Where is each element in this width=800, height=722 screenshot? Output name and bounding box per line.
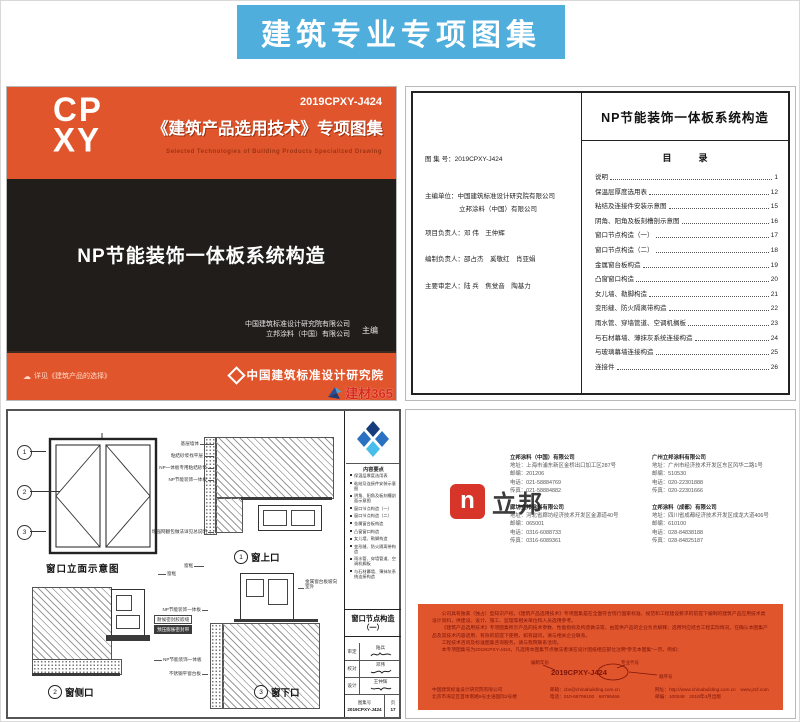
window-frame-section <box>240 573 294 621</box>
annotation-text: 不锈钢平窗台板 <box>169 671 201 676</box>
contents-item: 保温层厚度选用表 <box>354 473 398 478</box>
annotation: NP一体板专用粘结砂浆 <box>128 465 214 470</box>
copyright-notice-box: 公司具有独家（独占）型知识产权，《建筑产品选用技术》专项图集是在全面符合现行国家… <box>418 604 783 710</box>
annotation: NP节能装饰一体板 <box>128 477 214 482</box>
annotation: 金属窗台板坡向室外 <box>298 579 339 590</box>
sheet-title: 窗口节点构造 <box>345 614 401 623</box>
company-zip: 邮编：610100 <box>652 520 792 528</box>
window-frame-section <box>111 589 145 637</box>
company-block: 立邦涂料（成都）有限公司 地址：四川省成都经济技术开发区成龙大道406号 邮编：… <box>652 504 792 545</box>
company-zip: 邮编：201206 <box>510 470 648 478</box>
toc-item: 女儿墙、勒脚构造21 <box>595 288 778 298</box>
page-label: 页 <box>391 700 395 706</box>
annotation-text: NP一体板专用粘结砂浆 <box>159 465 207 470</box>
detail-label: 窗下口 <box>271 685 300 699</box>
publisher-web-col: 网址：http://www.chinabuilding.com.cn www.j… <box>655 687 769 701</box>
company-fax: 传真：021-58884882 <box>510 487 648 495</box>
publisher-email: 邮箱：cbs@chinabuilding.com.cn <box>550 687 645 694</box>
toc-item-label: 与石材幕墙、薄抹灰系统连接构造 <box>595 332 693 342</box>
contents-item: 阴角、阳角及板刻槽剖面示意图 <box>354 493 398 503</box>
annotation: 窗框 <box>158 571 176 576</box>
publish-date: 2019年4月出版 <box>689 694 721 699</box>
publisher-web: 网址：http://www.chinabuilding.com.cn www.j… <box>655 687 769 694</box>
contents-item: 雨水管、穿墙管道、空调机搁板 <box>354 556 398 566</box>
detail-label: 窗侧口 <box>65 685 94 699</box>
titleblock-contents-list: 保温层厚度选用表 粘结及连接件安装示意图 阴角、阳角及板刻槽剖面示意图 窗口节点… <box>348 473 400 582</box>
window-frame-section <box>258 505 322 531</box>
atlas-no-label: 图集号 <box>358 700 371 706</box>
watermark-arrow-icon <box>327 385 343 401</box>
company-name: 立邦涂料（成都）有限公司 <box>652 504 792 512</box>
contact-panel: n 立邦 立邦涂料（中国）有限公司 地址：上海市浦东新区金桥出口加工区287号 … <box>405 409 796 719</box>
annotation-text: 增强网翻包做法详见总说明 <box>152 529 207 534</box>
cbs-logo: 中国建筑标准设计研究院 <box>230 367 385 383</box>
signature-role: 校对 <box>345 660 360 677</box>
marker-leader <box>30 531 46 533</box>
toc-item-dots <box>649 295 769 297</box>
signature-scribble <box>370 651 392 658</box>
annotation: NP节能装饰一体板 <box>154 657 202 662</box>
editor-org-1: 中国建筑标准设计研究院有限公司 <box>245 320 350 330</box>
wall-hatch <box>32 587 112 661</box>
toc-item-dots <box>636 280 769 282</box>
cover-footer: ☁ 详见《建筑产品的选择》 中国建筑标准设计研究院 建材365 <box>7 351 396 401</box>
detail-caption-1: 1 窗上口 <box>234 550 280 564</box>
company-address: 地址：四川省成都经济技术开发区成龙大道406号 <box>652 512 792 520</box>
toc-item: 窗口节点构造（一）17 <box>595 229 778 239</box>
titleblock-contents-heading: 内容要点 <box>346 463 401 473</box>
notice-paragraph: 《建筑产品选用技术》专项图集所示产品的技术参数、性能指标及构造做法等，由提供产品… <box>432 625 769 639</box>
toc-item-label: 金属窗台板构造 <box>595 259 641 269</box>
toc-item: 金属窗台板构造19 <box>595 259 778 269</box>
atlas-code: 2019CPXY-J424 <box>300 96 382 108</box>
contact-column-1: 立邦涂料（中国）有限公司 地址：上海市浦东新区金桥出口加工区287号 邮编：20… <box>510 454 648 554</box>
company-fax: 传真：028-84825187 <box>652 537 792 545</box>
annotation: 粘结砂浆找平层 <box>128 453 214 458</box>
page: 建筑专业专项图集 CP XY 2019CPXY-J424 《建筑产品选用技术》专… <box>0 0 800 722</box>
marker-leader <box>30 491 60 493</box>
detail-label: 窗上口 <box>251 550 280 564</box>
publisher-address: 北京市海淀区首体南路9号主语国际2号楼 <box>432 694 540 701</box>
toc-item: 变形缝、防火隔离带构造22 <box>595 302 778 312</box>
toc-item-label: 与玻璃幕墙连接构造 <box>595 346 654 356</box>
series-title: 《建筑产品选用技术》专项图集 <box>152 115 383 139</box>
toc-item-page: 20 <box>771 276 778 283</box>
toc-item-label: 女儿墙、勒脚构造 <box>595 288 647 298</box>
toc-frame: 图 集 号：2019CPXY-J424 主编单位：中国建筑标准设计研究院有限公司… <box>411 91 790 395</box>
toc-item-page: 18 <box>771 247 778 254</box>
toc-item-page: 16 <box>771 218 778 225</box>
annotation-text: NP节能装饰一体板 <box>168 477 207 482</box>
toc-item-label: 窗口节点构造（一） <box>595 229 654 239</box>
toc-item-page: 17 <box>771 232 778 239</box>
toc-item-dots <box>695 339 769 341</box>
toc-item-dots <box>688 324 769 326</box>
toc-item-page: 19 <box>771 262 778 269</box>
diagram-label-year: 编制年份 <box>531 659 549 666</box>
notice-paragraph: 本专项图集号为2019CPXY-J424，凡选用本图集节点做法者请在设计图纸相应… <box>432 647 769 654</box>
toc-item-page: 1 <box>774 174 778 181</box>
toc-item: 凸窗窗口构造20 <box>595 273 778 283</box>
window-elevation-drawing <box>42 433 164 559</box>
toc-item: 保温层厚度选用表12 <box>595 186 778 196</box>
contents-item: 金属窗台板构造 <box>354 521 398 526</box>
toc-item: 说明1 <box>595 171 778 181</box>
nippon-paint-logo-icon: n <box>450 484 485 519</box>
company-fax: 传真：020-22301666 <box>652 487 792 495</box>
publisher-org-col: 中国建筑标准设计研究院有限公司 北京市海淀区首体南路9号主语国际2号楼 <box>432 687 540 701</box>
cbs-diamond-logo <box>354 419 392 457</box>
cover-footer-left: ☁ 详见《建筑产品的选择》 <box>23 371 111 381</box>
sheet-title-2: （一） <box>345 623 401 632</box>
detail-number: 3 <box>254 685 268 699</box>
marker-leader <box>30 451 46 453</box>
company-block: 廊坊立邦涂料有限公司 地址：河北省廊坊经济技术开发区金源道40号 邮编：0650… <box>510 504 648 545</box>
toc-item: 阴角、阳角及板刻槽剖示意图16 <box>595 215 778 225</box>
toc-page-title: NP节能装饰一体板系统构造 <box>601 107 769 126</box>
cover-panel: CP XY 2019CPXY-J424 《建筑产品选用技术》专项图集 Selec… <box>6 86 397 401</box>
toc-item-dots <box>669 309 769 311</box>
signature-scribble <box>370 668 392 675</box>
drawing-panel: 1 2 3 窗口立面示意图 基层墙体 粘结砂浆找平层 NP一体板专用粘结砂浆 N… <box>6 409 401 719</box>
toc-item-label: 保温层厚度选用表 <box>595 186 647 196</box>
signature-row: 审定 陆兵 <box>345 643 401 661</box>
toc-heading: 目 录 <box>582 151 788 164</box>
wall-hatch <box>215 437 334 499</box>
cpxy-logo-line2: XY <box>53 124 103 154</box>
contact-column-2: 广州立邦涂料有限公司 地址：广州市经济技术开发区东区风华二路1号 邮编：5105… <box>652 454 792 554</box>
company-address: 地址：上海市浦东新区金桥出口加工区287号 <box>510 462 648 470</box>
company-tel: 电话：028-84838188 <box>652 529 792 537</box>
detail-number: 1 <box>234 550 248 564</box>
annotation-text: NP节能装饰一体板 <box>163 657 202 662</box>
notice-paragraph: 工程技术咨询及标准图集咨询服务，请与我院联系洽询。 <box>432 640 769 647</box>
publisher-zip: 邮编：100048 <box>655 694 685 699</box>
toc-item-label: 变形缝、防火隔离带构造 <box>595 302 667 312</box>
cpxy-logo: CP XY <box>53 94 103 155</box>
toc-item-page: 23 <box>771 320 778 327</box>
toc-item-label: 窗口节点构造（二） <box>595 244 654 254</box>
annotation-box: 耐候密封胶嵌缝 <box>154 615 192 624</box>
contents-item: 变形缝、防火隔离带构造 <box>354 544 398 554</box>
company-block: 广州立邦涂料有限公司 地址：广州市经济技术开发区东区风华二路1号 邮编：5105… <box>652 454 792 495</box>
sheet-title-box: 窗口节点构造 （一） <box>345 609 401 637</box>
signature-role: 设计 <box>345 677 360 694</box>
toc-item-page: 22 <box>771 305 778 312</box>
notice-paragraphs: 公司具有独家（独占）型知识产权，《建筑产品选用技术》专项图集是在全面符合现行国家… <box>418 604 783 654</box>
annotation-text: 粘结砂浆找平层 <box>171 453 203 458</box>
cbs-logo-text: 中国建筑标准设计研究院 <box>247 367 385 383</box>
banner-title: 建筑专业专项图集 <box>261 10 541 54</box>
annotation: NP节能装饰一体板 <box>140 607 208 612</box>
company-fax: 传真：0316-6089361 <box>510 537 648 545</box>
elevation-caption: 窗口立面示意图 <box>46 561 120 575</box>
detail-caption-2: 2 窗侧口 <box>48 685 94 699</box>
annotation-text: NP节能装饰一体板 <box>162 607 201 612</box>
toc-item-page: 21 <box>771 291 778 298</box>
toc-item: 与石材幕墙、薄抹灰系统连接构造24 <box>595 332 778 342</box>
signature-role: 审定 <box>345 643 360 660</box>
toc-item: 连接件26 <box>595 361 778 371</box>
toc-item: 雨水管、穿墙管道、空调机搁板23 <box>595 317 778 327</box>
toc-item-dots <box>649 193 769 195</box>
company-zip: 邮编：065001 <box>510 520 648 528</box>
contents-item: 粘结及连接件安装示意图 <box>354 481 398 491</box>
toc-panel: 图 集 号：2019CPXY-J424 主编单位：中国建筑标准设计研究院有限公司… <box>405 86 796 401</box>
cover-header: CP XY 2019CPXY-J424 《建筑产品选用技术》专项图集 Selec… <box>7 87 396 179</box>
publisher-tel: 电话：010-68799100 68799466 <box>550 694 645 701</box>
toc-item-label: 凸窗窗口构造 <box>595 273 634 283</box>
contents-item: 窗口节点构造（一） <box>354 506 398 511</box>
toc-item: 粘结及连接件安装示意图15 <box>595 200 778 210</box>
info-atlas-no: 图 集 号：2019CPXY-J424 <box>425 153 502 163</box>
company-tel: 电话：021-58884769 <box>510 479 648 487</box>
logo-letter: n <box>460 489 475 513</box>
toc-item-label: 说明 <box>595 171 608 181</box>
page-banner: 建筑专业专项图集 <box>237 5 565 59</box>
series-subtitle-en: Selected Technologies of Building Produc… <box>166 149 382 155</box>
toc-item-dots <box>682 222 769 224</box>
atlas-number-diagram: 编制年份 专业代号 顺序号 2019CPXY-J424 <box>521 656 681 684</box>
company-name: 立邦涂料（中国）有限公司 <box>510 454 648 462</box>
board-edge <box>241 497 332 500</box>
annotation-box: 预压膨胀密封带 <box>154 625 192 634</box>
annotation-text: 窗框 <box>167 571 176 576</box>
toc-item-label: 阴角、阳角及板刻槽剖示意图 <box>595 215 680 225</box>
publisher-footer: 中国建筑标准设计研究院有限公司 北京市海淀区首体南路9号主语国际2号楼 邮箱：c… <box>418 684 783 701</box>
contents-item: 与石材幕墙、薄抹灰系统连接构造 <box>354 569 398 579</box>
wall-hatch <box>215 497 243 533</box>
cbs-logo-icon <box>227 366 245 384</box>
annotation: 不锈钢平窗台板 <box>140 671 208 676</box>
annotation: 窗框 <box>184 563 204 568</box>
company-tel: 电话：0316-6088733 <box>510 529 648 537</box>
contents-item: 女儿墙、勒脚构造 <box>354 536 398 541</box>
toc-list: 说明1 保温层厚度选用表12 粘结及连接件安装示意图15 阴角、阳角及板刻槽剖示… <box>595 171 778 375</box>
annotation-text: 基层墙体 <box>181 441 199 446</box>
sill-piece <box>106 635 150 641</box>
info-reviewers: 主要审定人：陆 兵 焦觉音 陶基力 <box>425 280 531 290</box>
toc-item-page: 24 <box>771 335 778 342</box>
toc-item-dots <box>610 178 772 180</box>
toc-item-dots <box>617 368 769 370</box>
cover-black-band: NP节能装饰一体板系统构造 中国建筑标准设计研究院有限公司 立邦涂料（中国）有限… <box>7 179 396 351</box>
publisher-contact-col: 邮箱：cbs@chinabuilding.com.cn 电话：010-68799… <box>550 687 645 701</box>
detail-caption-3: 3 窗下口 <box>254 685 300 699</box>
editor-org-2: 立邦涂料（中国）有限公司 <box>245 330 350 340</box>
info-editor-org2: 立邦涂料（中国）有限公司 <box>459 203 537 213</box>
toc-item-dots <box>656 353 769 355</box>
cloud-icon: ☁ <box>23 372 31 381</box>
toc-item: 与玻璃幕墙连接构造25 <box>595 346 778 356</box>
toc-item-label: 粘结及连接件安装示意图 <box>595 200 667 210</box>
info-project-lead: 项目负责人：邓 伟 王仲辉 <box>425 227 505 237</box>
annotation-text: 金属窗台板坡向室外 <box>305 579 339 590</box>
diagram-label-seq: 顺序号 <box>659 673 673 680</box>
annotation-text: 窗框 <box>184 563 193 568</box>
atlas-no-value: 2019CPXY-J424 <box>347 707 381 712</box>
diagram-label-major: 专业代号 <box>621 659 639 666</box>
company-tel: 电话：020-22301888 <box>652 479 792 487</box>
watermark: 建材365 <box>327 383 393 401</box>
signature-row: 校对 邓伟 <box>345 660 401 678</box>
toc-item-page: 12 <box>771 189 778 196</box>
sill-piece <box>234 619 318 622</box>
company-zip: 邮编：510530 <box>652 470 792 478</box>
watermark-text: 建材365 <box>345 383 393 401</box>
info-editor-org: 主编单位：中国建筑标准设计研究院有限公司 <box>425 190 555 200</box>
toc-page-title-box: NP节能装饰一体板系统构造 <box>582 93 788 141</box>
toc-item-dots <box>656 236 769 238</box>
toc-item-dots <box>656 251 769 253</box>
editor-role: 主编 <box>362 325 378 336</box>
company-block: 立邦涂料（中国）有限公司 地址：上海市浦东新区金桥出口加工区287号 邮编：20… <box>510 454 648 495</box>
page-number: 17 <box>390 707 395 712</box>
notice-paragraph: 公司具有独家（独占）型知识产权，《建筑产品选用技术》专项图集是在全面符合现行国家… <box>432 611 769 625</box>
toc-item-page: 15 <box>771 203 778 210</box>
toc-item: 窗口节点构造（二）18 <box>595 244 778 254</box>
book-title: NP节能装饰一体板系统构造 <box>7 241 396 268</box>
toc-item-page: 25 <box>771 349 778 356</box>
signature-row: 设计 王仲辉 <box>345 677 401 695</box>
detail-number: 2 <box>48 685 62 699</box>
toc-item-label: 雨水管、穿墙管道、空调机搁板 <box>595 317 686 327</box>
toc-item-dots <box>669 207 769 209</box>
signature-scribble <box>370 685 392 692</box>
toc-item-page: 26 <box>771 364 778 371</box>
info-compile-lead: 编制负责人：邵占杰 奚敬红 肖亚娟 <box>425 253 536 263</box>
editor-orgs: 中国建筑标准设计研究院有限公司 立邦涂料（中国）有限公司 <box>245 320 350 339</box>
toc-item-label: 连接件 <box>595 361 615 371</box>
titleblock-bottom: 图集号 2019CPXY-J424 页 17 <box>345 694 401 717</box>
cover-footer-left-text: 详见《建筑产品的选择》 <box>34 371 111 381</box>
publisher-org: 中国建筑标准设计研究院有限公司 <box>432 687 540 694</box>
company-address: 地址：河北省廊坊经济技术开发区金源道40号 <box>510 512 648 520</box>
annotation: 基层墙体 <box>128 441 214 446</box>
company-name: 廊坊立邦涂料有限公司 <box>510 504 648 512</box>
contents-item: 凸窗窗口构造 <box>354 529 398 534</box>
board-edge <box>32 673 120 676</box>
annotation: 增强网翻包做法详见总说明 <box>124 529 214 534</box>
company-address: 地址：广州市经济技术开发区东区风华二路1号 <box>652 462 792 470</box>
toc-item-dots <box>643 266 769 268</box>
contents-item: 窗口节点构造（二） <box>354 513 398 518</box>
company-name: 广州立邦涂料有限公司 <box>652 454 792 462</box>
